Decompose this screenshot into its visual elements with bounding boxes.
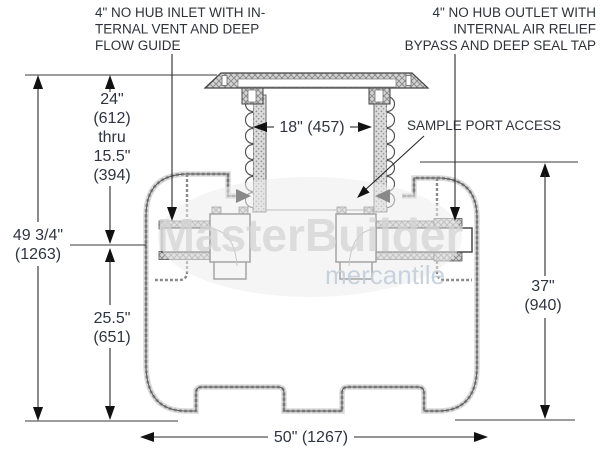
dim-tank-height-line1: 37" (531, 278, 554, 295)
manhole-cover (205, 73, 428, 104)
dim-outlet-to-base-line2: (651) (93, 329, 130, 346)
callout-inlet-line2: TERNAL VENT AND DEEP (95, 22, 259, 37)
callout-outlet: 4" NO HUB OUTLET WITH INTERNAL AIR RELIE… (405, 5, 596, 221)
drawing-canvas: MasterBuilder mercantile 49 3/4" (1263) … (0, 0, 600, 473)
callout-outlet-line3: BYPASS AND DEEP SEAL TAP (405, 38, 596, 53)
dim-outlet-to-base: 25.5" (651) (93, 248, 130, 420)
dim-cover-depth-line1: 24" (100, 91, 123, 108)
callout-outlet-line2: INTERNAL AIR RELIEF (453, 22, 596, 37)
dim-cover-depth-line4: 15.5" (94, 148, 131, 165)
watermark-name: MasterBuilder (157, 209, 464, 261)
dim-outlet-to-base-line1: 25.5" (94, 310, 131, 327)
dim-overall-length-label: 50" (1267) (274, 429, 348, 446)
dim-cover-depth-range: 24" (612) thru 15.5" (394) (93, 75, 130, 244)
callout-outlet-line1: 4" NO HUB OUTLET WITH (432, 5, 596, 20)
callout-inlet-line1: 4" NO HUB INLET WITH IN- (95, 5, 265, 20)
dim-cover-depth-line3: thru (98, 129, 126, 146)
dim-riser-opening: 18" (457) (253, 119, 372, 136)
dim-overall-height: 49 3/4" (1263) (13, 75, 63, 421)
watermark-subname: mercantile (325, 260, 445, 290)
callout-inlet-line3: FLOW GUIDE (95, 38, 181, 53)
interceptor-spec-drawing: MasterBuilder mercantile 49 3/4" (1263) … (0, 0, 600, 473)
dim-overall-height-line2: (1263) (15, 246, 61, 263)
dim-tank-height: 37" (940) (524, 163, 561, 419)
dim-overall-length: 50" (1267) (140, 429, 488, 446)
dim-overall-height-line1: 49 3/4" (13, 227, 63, 244)
dim-riser-opening-label: 18" (457) (279, 119, 344, 136)
callout-sample-port-label: SAMPLE PORT ACCESS (407, 118, 561, 133)
dim-tank-height-line2: (940) (524, 297, 561, 314)
dim-cover-depth-line5: (394) (93, 167, 130, 184)
dim-cover-depth-line2: (612) (93, 110, 130, 127)
watermark: MasterBuilder mercantile (157, 177, 464, 297)
